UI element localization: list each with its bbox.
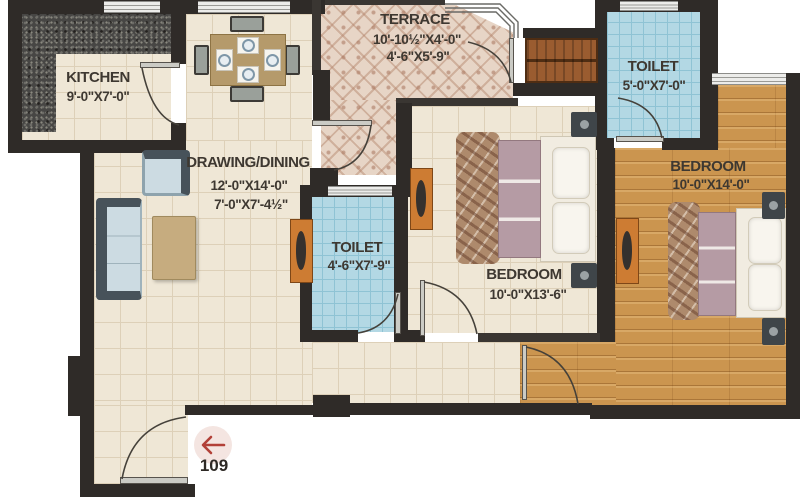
wall — [310, 168, 338, 186]
bedroom-right-window — [712, 73, 786, 85]
toilet-top-door — [616, 136, 664, 142]
toilet-top-dims: 5'-0"X7'-0" — [623, 78, 686, 93]
bedroom-mid-dims: 10'-0"X13'-6" — [489, 287, 566, 302]
bedside-table — [762, 192, 785, 219]
terrace-dims-1: 10'-10½"X4'-0" — [373, 32, 461, 47]
wall — [312, 0, 321, 75]
terrace-parapet — [325, 0, 445, 5]
bedroom-right-floor-entry — [520, 342, 616, 405]
wall — [80, 484, 195, 497]
bedroom-right-dims: 10'-0"X14'-0" — [672, 177, 749, 192]
bedroom-right-floor-top — [718, 85, 786, 155]
drawing-dining-label: DRAWING/DINING — [186, 154, 310, 171]
wash-basin — [616, 218, 639, 284]
toilet-mid-window — [328, 186, 392, 196]
wall-pilaster — [68, 356, 82, 416]
kitchen-door — [140, 62, 180, 68]
wall — [8, 0, 22, 144]
armchair — [142, 150, 190, 196]
wall — [185, 405, 313, 415]
drawing-dining-dims-1: 12'-0"X14'-0" — [210, 178, 287, 193]
terrace-door — [312, 120, 372, 126]
wall — [350, 403, 592, 415]
placemat — [264, 49, 281, 71]
wardrobe — [525, 38, 598, 83]
wall — [300, 330, 358, 342]
wall — [313, 395, 350, 417]
bedside-table — [571, 112, 597, 137]
placemat — [237, 66, 259, 83]
wall — [523, 28, 600, 38]
bedroom-right-door — [522, 345, 527, 400]
toilet-top-label: TOILET — [628, 58, 679, 75]
bed-pillow — [748, 217, 782, 264]
wall — [662, 138, 718, 150]
bedside-table — [762, 318, 785, 345]
wall — [513, 83, 605, 96]
dining-chair — [230, 86, 264, 102]
bed-pillow — [552, 147, 590, 199]
toilet-mid-label: TOILET — [332, 239, 383, 256]
kitchen-counter-left — [22, 14, 56, 132]
kitchen-label: KITCHEN — [66, 69, 130, 86]
toilet-mid-door — [395, 292, 401, 334]
bedside-rug — [456, 132, 500, 264]
bed-blanket — [698, 212, 736, 316]
wall — [396, 98, 518, 106]
toilet-mid-dims: 4'-6"X7'-9" — [328, 258, 391, 273]
coffee-table — [152, 216, 196, 280]
terrace-floor-lobe — [321, 100, 400, 175]
wall — [590, 405, 796, 419]
wash-basin — [410, 168, 433, 230]
wall — [597, 148, 615, 342]
bedroom-mid-door — [420, 280, 425, 336]
dining-chair — [194, 45, 209, 75]
kitchen-dims: 9'-0"X7'-0" — [67, 89, 130, 104]
sofa — [96, 198, 142, 300]
bedroom-mid-label: BEDROOM — [486, 266, 562, 283]
bed-blanket — [498, 140, 541, 258]
corridor-floor — [312, 342, 520, 403]
plate-icon — [242, 68, 255, 81]
wall — [478, 333, 600, 342]
toilet-top-window — [620, 1, 678, 11]
bed-pillow — [748, 264, 782, 311]
terrace-label: TERRACE — [380, 11, 450, 28]
unit-number: 109 — [200, 456, 228, 476]
bed-pillow — [552, 202, 590, 254]
wash-basin — [290, 219, 313, 283]
terrace-dims-2: 4'-6"X5'-9" — [387, 49, 450, 64]
wall — [171, 123, 186, 143]
dining-chair — [285, 45, 300, 75]
wall — [80, 140, 94, 490]
floor-plan: KITCHEN 9'-0"X7'-0" TERRACE 10'-10½"X4'-… — [0, 0, 800, 497]
placemat — [216, 49, 233, 71]
drawing-dining-dims-2: 7'-0"X7'-4½" — [214, 197, 288, 212]
kitchen-window — [104, 1, 160, 13]
plate-icon — [242, 39, 255, 52]
plate-icon — [218, 54, 231, 67]
placemat — [237, 37, 259, 54]
bedside-rug — [668, 202, 700, 320]
plate-icon — [266, 54, 279, 67]
wall — [171, 14, 186, 64]
entrance-door — [120, 477, 188, 484]
wall — [786, 78, 800, 419]
bedroom-right-label: BEDROOM — [670, 158, 746, 175]
dining-window — [198, 1, 290, 13]
foyer-floor — [94, 405, 188, 484]
dining-chair — [230, 16, 264, 32]
terrace-side-door — [509, 38, 514, 83]
bedside-table — [571, 263, 597, 288]
wall — [313, 70, 330, 125]
